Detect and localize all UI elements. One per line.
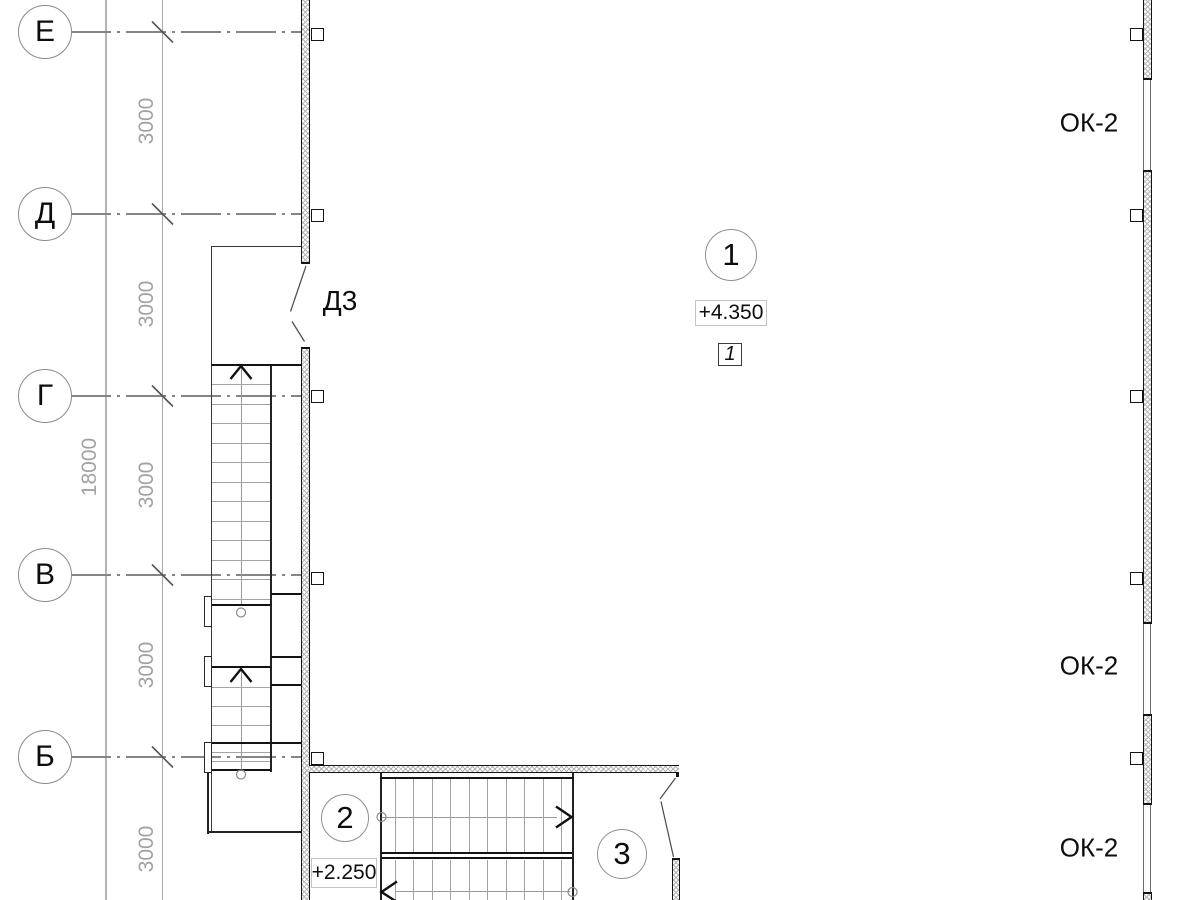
grid-axis-line xyxy=(71,31,301,32)
stair-tread-line xyxy=(212,579,271,580)
window-glazing-line xyxy=(1150,80,1151,170)
bay-dimension-text: 3000 xyxy=(135,642,159,689)
axis-balloon-1: 1 xyxy=(705,229,757,281)
axis-label: Б xyxy=(35,740,55,774)
grid-wall-marker xyxy=(311,752,324,765)
stair-tread-line xyxy=(432,779,433,852)
axis-bubble-e: Е xyxy=(18,5,72,59)
door-leaf-line xyxy=(291,266,307,342)
axis-bubble-v: В xyxy=(18,548,72,602)
stair-tread-line xyxy=(450,860,451,900)
detail-marker-number: 1 xyxy=(724,343,735,366)
stair-tread-line xyxy=(212,725,271,726)
stair-tread-line xyxy=(524,779,525,852)
bottom-stair-landing-edge xyxy=(381,852,572,854)
window-tag-label: ОК-2 xyxy=(1060,651,1119,682)
stair-landing-edge xyxy=(211,666,271,668)
stair-tread-line xyxy=(450,779,451,852)
wall-right-segment xyxy=(1143,170,1152,624)
stair-top-landing-edge xyxy=(211,364,301,366)
stair-pilaster xyxy=(204,742,212,773)
axis-bubble-g: Г xyxy=(18,369,72,423)
stair-tread-line xyxy=(212,482,271,483)
bottom-stair-left-edge xyxy=(380,773,382,900)
stair-tread-line xyxy=(212,423,271,424)
grid-axis-line xyxy=(71,213,301,214)
wall-bottom-right xyxy=(672,858,680,900)
grid-wall-marker xyxy=(1130,209,1143,222)
grid-axis-line xyxy=(71,756,301,757)
stairwell-outer-bottom xyxy=(207,831,303,833)
grid-wall-marker xyxy=(1130,28,1143,41)
stair-tread-line xyxy=(469,860,470,900)
grid-wall-marker xyxy=(311,572,324,585)
wall-bottom-wing xyxy=(309,765,679,773)
axis-label: В xyxy=(35,558,55,592)
stair-tread-line xyxy=(413,779,414,852)
stair-tread-line xyxy=(212,443,271,444)
stair-tread-line xyxy=(395,779,396,852)
grid-wall-marker xyxy=(1130,572,1143,585)
total-dimension-line xyxy=(105,0,107,900)
window-glazing-line xyxy=(1143,624,1144,715)
window-tag-label: ОК-2 xyxy=(1060,833,1119,864)
axis-label: Д xyxy=(35,197,55,231)
stair-wall-stub xyxy=(271,593,301,595)
stair-tread-line xyxy=(212,404,271,405)
grid-axis-line xyxy=(71,574,301,575)
wall-right-segment xyxy=(1143,714,1152,805)
stair-tread-line xyxy=(212,706,271,707)
axis-bubble-b: Б xyxy=(18,730,72,784)
bay-dimension-text: 3000 xyxy=(135,281,159,328)
stair-tread-line xyxy=(212,761,271,762)
bottom-stair-top-edge xyxy=(380,777,574,779)
bottom-stair-landing-edge xyxy=(381,857,572,859)
stairwell-top-line xyxy=(211,246,302,247)
window-glazing-line xyxy=(1150,805,1151,893)
stair-tread-line xyxy=(506,860,507,900)
stair-tread-line xyxy=(212,540,271,541)
axis-label: Е xyxy=(35,15,55,49)
stair-tread-line xyxy=(487,860,488,900)
stair-tread-line xyxy=(212,462,271,463)
stair-wall-stub xyxy=(271,656,301,658)
grid-axis-line xyxy=(71,395,301,396)
stair-tread-line xyxy=(487,779,488,852)
bay-dimension-text: 3000 xyxy=(135,826,159,873)
grid-wall-marker xyxy=(311,390,324,403)
stair-tread-line xyxy=(561,860,562,900)
stair-landing-edge xyxy=(211,769,271,771)
stair-tread-line xyxy=(506,779,507,852)
window-glazing-line xyxy=(1150,624,1151,715)
total-dimension-text: 18000 xyxy=(78,438,102,496)
axis-label: Г xyxy=(37,379,53,413)
detail-marker-box: 1 xyxy=(718,343,742,366)
stair-landing-edge xyxy=(207,742,302,744)
bay-dimension-line xyxy=(162,0,163,900)
axis-bubble-d: Д xyxy=(18,187,72,241)
window-glazing-line xyxy=(1143,805,1144,893)
door-tag-label: Д3 xyxy=(323,285,358,317)
bay-dimension-text: 3000 xyxy=(135,98,159,145)
wall-right-segment xyxy=(1143,892,1152,900)
wall-core-upper xyxy=(301,0,310,264)
stair-tread-line xyxy=(212,384,271,385)
window-glazing-line xyxy=(1143,80,1144,170)
stair-balloon-2: 2 xyxy=(321,794,369,842)
stair-centerline xyxy=(241,670,242,770)
wall-right-segment xyxy=(1143,0,1152,80)
level-mark-upper: +4.350 xyxy=(695,300,767,326)
stair-centerline xyxy=(396,891,570,892)
grid-wall-marker xyxy=(311,28,324,41)
bay-dimension-text: 3000 xyxy=(135,462,159,509)
stair-tread-line xyxy=(469,779,470,852)
door-leaf-line xyxy=(660,778,676,857)
balloon-number: 3 xyxy=(613,836,630,872)
stair-tread-line xyxy=(543,779,544,852)
stair-tread-line xyxy=(543,860,544,900)
balloon-number: 1 xyxy=(722,237,739,273)
level-value: +4.350 xyxy=(699,301,764,325)
wall-core-lower xyxy=(301,347,310,900)
grid-wall-marker xyxy=(311,209,324,222)
stair-tread-line xyxy=(395,860,396,900)
bottom-stair-right-edge xyxy=(572,765,574,900)
grid-wall-marker xyxy=(1130,752,1143,765)
floor-plan-canvas: Е Д Г В Б 3000 3000 3000 3000 3000 18000 xyxy=(0,0,1200,900)
stair-tread-line xyxy=(212,752,271,753)
stair-direction-arrow xyxy=(231,366,572,900)
stair-tread-line xyxy=(432,860,433,900)
level-value: +2.250 xyxy=(312,861,377,885)
level-mark-lower: +2.250 xyxy=(311,858,377,888)
window-tag-label: ОК-2 xyxy=(1060,108,1119,139)
stair-tread-line xyxy=(212,560,271,561)
room-balloon-3: 3 xyxy=(597,829,647,879)
stair-tread-line xyxy=(524,860,525,900)
stair-pilaster xyxy=(204,596,212,627)
grid-wall-marker xyxy=(1130,390,1143,403)
balloon-number: 2 xyxy=(336,800,353,836)
stair-tread-line xyxy=(212,687,271,688)
stair-wall-stub xyxy=(271,684,301,686)
stair-tread-line xyxy=(212,599,271,600)
stair-tread-line xyxy=(212,521,271,522)
stair-pilaster xyxy=(204,656,212,687)
stair-flight-right-edge xyxy=(270,364,272,772)
stair-tread-line xyxy=(561,779,562,852)
stair-landing-edge xyxy=(211,604,271,606)
stair-tread-line xyxy=(212,501,271,502)
stair-tread-line xyxy=(413,860,414,900)
